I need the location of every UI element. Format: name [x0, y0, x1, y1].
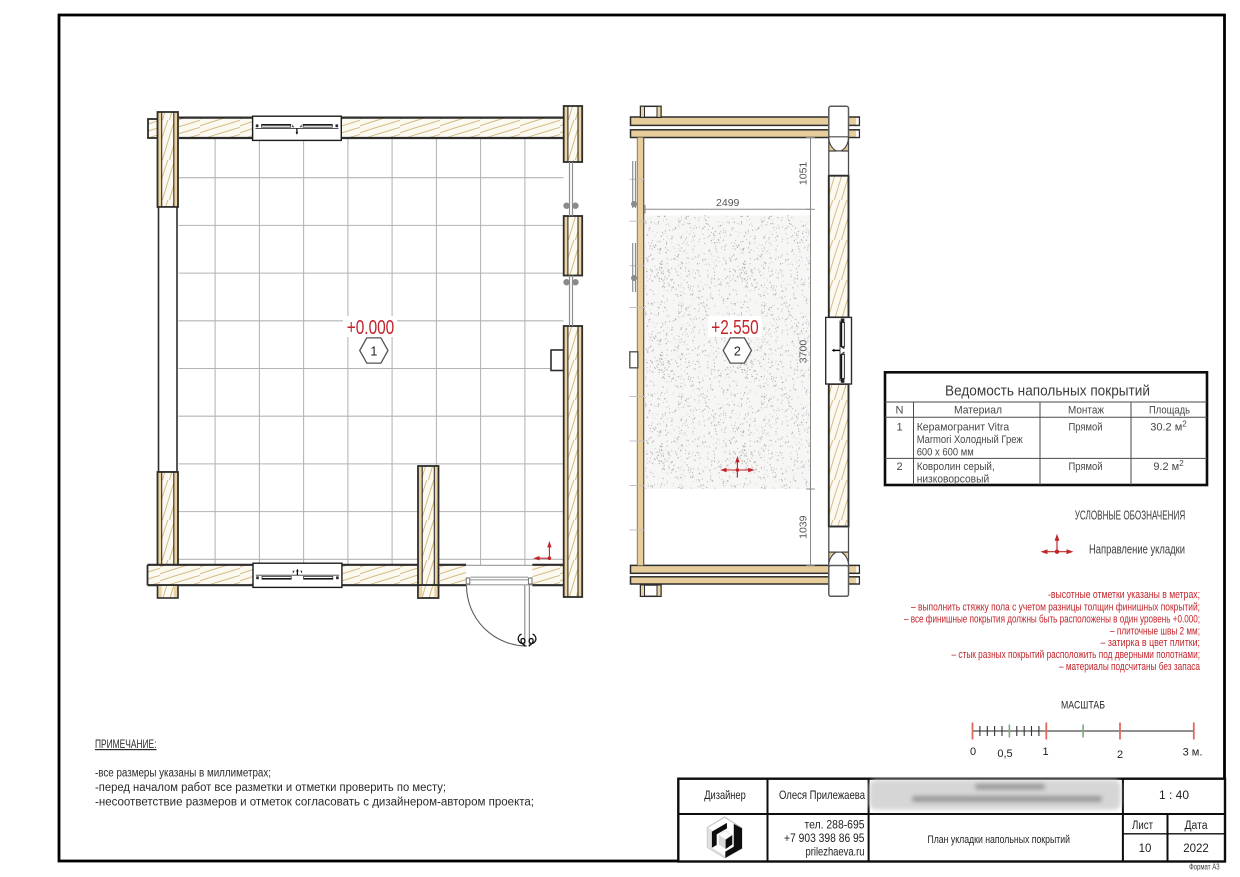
svg-text:Лист: Лист [1132, 820, 1154, 832]
svg-text:0: 0 [970, 746, 976, 758]
svg-text:Ковролин серый,: Ковролин серый, [917, 461, 995, 473]
svg-text:30.2 м2: 30.2 м2 [1150, 420, 1187, 434]
svg-text:– стык разных покрытий располо: – стык разных покрытий расположить под д… [952, 649, 1201, 661]
svg-text:Керамогранит Vitra: Керамогранит Vitra [917, 422, 1010, 434]
svg-text:Направление укладки: Направление укладки [1089, 542, 1185, 557]
svg-text:тел. 288-695: тел. 288-695 [805, 818, 865, 832]
svg-text:1 : 40: 1 : 40 [1159, 788, 1189, 802]
svg-text:1039: 1039 [798, 515, 810, 539]
svg-text:Дата: Дата [1185, 820, 1209, 832]
svg-text:600 х 600 мм: 600 х 600 мм [917, 446, 974, 458]
svg-text:1051: 1051 [798, 162, 810, 186]
svg-text:– материалы подсчитаны без зап: – материалы подсчитаны без запаса [1059, 661, 1201, 673]
svg-text:Дизайнер: Дизайнер [704, 788, 746, 802]
svg-text:2022: 2022 [1183, 843, 1209, 855]
svg-text:Ведомость напольных покрытий: Ведомость напольных покрытий [945, 384, 1150, 400]
svg-text:+0.000: +0.000 [347, 317, 395, 339]
svg-text:+7 903 398 86 95: +7 903 398 86 95 [784, 831, 865, 845]
svg-text:-перед началом работ все разме: -перед началом работ все разметки и отме… [95, 782, 446, 794]
svg-text:ПРИМЕЧАНИЕ:: ПРИМЕЧАНИЕ: [95, 737, 157, 751]
svg-text:Прямой: Прямой [1069, 461, 1103, 473]
svg-text:2: 2 [896, 461, 902, 473]
svg-text:Олеся Прилежаева: Олеся Прилежаева [779, 788, 865, 802]
svg-text:N: N [896, 405, 904, 417]
svg-text:-высотные отметки указаны в ме: -высотные отметки указаны в метрах; [1048, 589, 1200, 601]
svg-text:План укладки напольных покрыти: План укладки напольных покрытий [927, 834, 1070, 846]
svg-text:2499: 2499 [716, 197, 740, 209]
svg-text:1: 1 [370, 345, 377, 359]
svg-text:3 м.: 3 м. [1183, 747, 1203, 759]
svg-text:– выполнить стяжку пола с учет: – выполнить стяжку пола с учетом разницы… [911, 601, 1200, 613]
svg-text:УСЛОВНЫЕ ОБОЗНАЧЕНИЯ: УСЛОВНЫЕ ОБОЗНАЧЕНИЯ [1075, 508, 1186, 523]
svg-text:prilezhaeva.ru: prilezhaeva.ru [806, 845, 865, 859]
svg-text:0,5: 0,5 [997, 748, 1012, 760]
svg-text:1: 1 [1043, 746, 1049, 758]
svg-text:2: 2 [734, 345, 741, 359]
svg-text:Монтаж: Монтаж [1068, 405, 1105, 417]
svg-text:Marmori Холодный Греж: Marmori Холодный Греж [917, 434, 1024, 446]
svg-text:-несоответствие размеров и отм: -несоответствие размеров и отметок согла… [95, 797, 534, 809]
svg-text:низковорсовый: низковорсовый [917, 474, 990, 486]
svg-text:2: 2 [1117, 749, 1123, 761]
svg-text:– плиточные швы 2 мм;: – плиточные швы 2 мм; [1110, 625, 1200, 637]
svg-text:1: 1 [896, 422, 902, 434]
svg-text:10: 10 [1139, 843, 1152, 855]
svg-text:МАСШТАБ: МАСШТАБ [1061, 700, 1105, 712]
svg-text:Прямой: Прямой [1069, 422, 1103, 434]
svg-text:Формат А3: Формат А3 [1189, 863, 1220, 872]
svg-text:– затирка в цвет плитки;: – затирка в цвет плитки; [1101, 637, 1201, 649]
svg-text:– все финишные покрытия должны: – все финишные покрытия должны быть расп… [904, 613, 1200, 625]
svg-text:Материал: Материал [954, 405, 1002, 417]
svg-text:3700: 3700 [798, 340, 810, 364]
svg-text:+2.550: +2.550 [711, 317, 759, 339]
svg-text:-все размеры указаны в миллиме: -все размеры указаны в миллиметрах; [95, 768, 271, 780]
svg-text:Площадь: Площадь [1149, 405, 1190, 417]
